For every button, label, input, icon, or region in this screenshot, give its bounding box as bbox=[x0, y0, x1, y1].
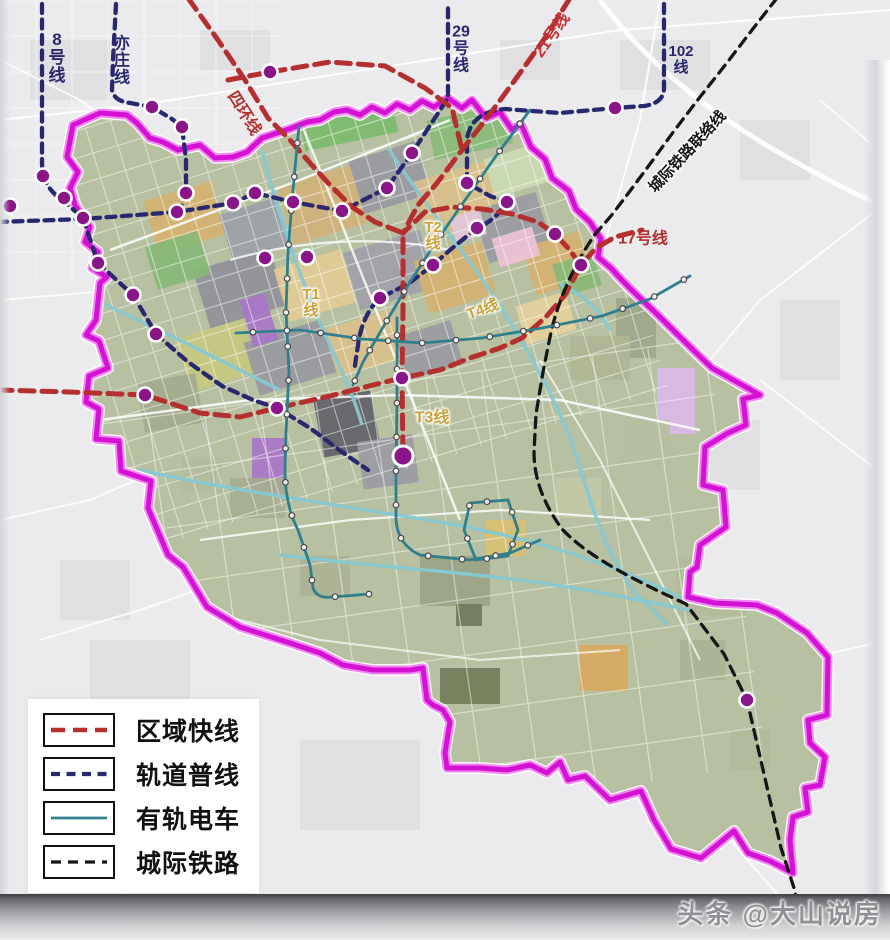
tram-stop bbox=[286, 242, 292, 248]
tram-stop bbox=[332, 594, 338, 600]
tram-stop bbox=[284, 412, 290, 418]
legend-swatch-metro bbox=[43, 757, 115, 791]
legend-swatch-intercity bbox=[43, 845, 115, 879]
legend: 区域快线轨道普线有轨电车城际铁路 bbox=[28, 699, 259, 893]
tram-stop bbox=[459, 556, 465, 562]
tram-stop bbox=[384, 318, 390, 324]
tram-stop bbox=[393, 468, 399, 474]
metro-station bbox=[574, 258, 589, 273]
tram-stop bbox=[587, 316, 593, 322]
metro-station bbox=[248, 186, 263, 201]
tram-stop bbox=[394, 332, 400, 338]
metro-station bbox=[126, 288, 141, 303]
outside-city-block bbox=[60, 560, 130, 620]
legend-swatch-tram bbox=[43, 801, 115, 835]
legend-item-intercity: 城际铁路 bbox=[43, 845, 240, 879]
tram-stop bbox=[283, 310, 289, 316]
tram-stop bbox=[318, 330, 324, 336]
tram-stop bbox=[484, 556, 490, 562]
metro-station bbox=[179, 186, 194, 201]
tram-stop bbox=[465, 536, 471, 542]
metro-station bbox=[548, 227, 563, 242]
tram-stop bbox=[425, 553, 431, 559]
tram-stop bbox=[510, 541, 516, 547]
metro-station bbox=[270, 401, 285, 416]
outside-city-block bbox=[300, 740, 420, 830]
tram-stop bbox=[438, 232, 444, 238]
metro-station bbox=[300, 250, 315, 265]
metro-station bbox=[91, 256, 106, 271]
tram-stop bbox=[250, 329, 256, 335]
land-use-patch bbox=[420, 556, 490, 606]
tram-stop bbox=[394, 400, 400, 406]
legend-label: 有轨电车 bbox=[136, 800, 240, 836]
legend-swatch-regional bbox=[43, 713, 115, 747]
tram-stop bbox=[419, 340, 425, 346]
tram-stop bbox=[283, 480, 289, 486]
metro-station bbox=[373, 291, 388, 306]
tram-stop bbox=[291, 174, 297, 180]
tram-stop bbox=[385, 338, 391, 344]
legend-item-metro: 轨道普线 bbox=[43, 757, 240, 791]
tram-stop bbox=[620, 306, 626, 312]
metro-station bbox=[608, 101, 623, 116]
metro-station bbox=[380, 181, 395, 196]
tram-stop bbox=[366, 591, 372, 597]
legend-label: 区域快线 bbox=[136, 712, 240, 748]
tram-stop bbox=[284, 276, 290, 282]
tram-stop bbox=[393, 502, 399, 508]
tram-stop bbox=[487, 334, 493, 340]
metro-station bbox=[76, 211, 91, 226]
tram-stop bbox=[301, 545, 307, 551]
tram-stop bbox=[401, 289, 407, 295]
tram-stop bbox=[286, 378, 292, 384]
tram-stop bbox=[283, 446, 289, 452]
tram-stop bbox=[477, 176, 483, 182]
metro-station bbox=[460, 176, 475, 191]
metro-station bbox=[36, 169, 51, 184]
metro-station bbox=[138, 388, 153, 403]
tram-stop bbox=[309, 577, 315, 583]
metro-station bbox=[740, 693, 755, 708]
watermark: 头条 @大山说房 bbox=[677, 894, 882, 931]
land-use-patch bbox=[440, 668, 500, 704]
metro-station bbox=[175, 120, 190, 135]
metro-station bbox=[500, 195, 515, 210]
metro-station bbox=[335, 204, 350, 219]
tram-stop bbox=[517, 121, 523, 127]
legend-item-tram: 有轨电车 bbox=[43, 801, 240, 835]
page-edge-right bbox=[864, 60, 890, 940]
tram-stop bbox=[284, 328, 290, 334]
metro-station bbox=[57, 191, 72, 206]
legend-item-regional: 区域快线 bbox=[43, 713, 240, 747]
land-use-patch bbox=[730, 730, 770, 770]
tram-stop bbox=[509, 509, 515, 515]
tram-stop bbox=[493, 553, 499, 559]
tram-stop bbox=[521, 328, 527, 334]
metro-station bbox=[258, 251, 273, 266]
planning-map-page: 8 号 线亦 庄 线四环线29 号 线21号线102 线城际铁路联络线17号线T… bbox=[0, 0, 890, 940]
tram-stop bbox=[453, 337, 459, 343]
metro-station bbox=[145, 100, 160, 115]
tram-stop bbox=[681, 277, 687, 283]
metro-station bbox=[170, 205, 185, 220]
outside-city-block bbox=[780, 300, 840, 380]
tram-stop bbox=[285, 344, 291, 350]
tram-stop bbox=[289, 513, 295, 519]
tram-stop bbox=[554, 322, 560, 328]
tram-stop bbox=[295, 140, 301, 146]
metro-station bbox=[263, 65, 278, 80]
metro-station bbox=[405, 146, 420, 161]
tram-stop bbox=[352, 378, 358, 384]
tram-stop bbox=[484, 499, 490, 505]
tram-stop bbox=[467, 503, 473, 509]
tram-stop bbox=[394, 434, 400, 440]
tram-stop bbox=[398, 535, 404, 541]
metro-station bbox=[149, 327, 164, 342]
tram-stop bbox=[367, 347, 373, 353]
metro-station bbox=[395, 371, 410, 386]
legend-label: 城际铁路 bbox=[136, 844, 240, 880]
tram-stop bbox=[352, 335, 358, 341]
legend-label: 轨道普线 bbox=[136, 756, 240, 792]
metro-station bbox=[226, 196, 241, 211]
tram-stop bbox=[652, 294, 658, 300]
page-edge-left bbox=[0, 0, 10, 940]
metro-station bbox=[426, 258, 441, 273]
metro-station bbox=[286, 195, 301, 210]
tram-stop bbox=[497, 148, 503, 154]
tram-stop bbox=[458, 204, 464, 210]
metro-station bbox=[470, 221, 485, 236]
tram-stop bbox=[525, 543, 531, 549]
terminal-station bbox=[393, 446, 413, 466]
